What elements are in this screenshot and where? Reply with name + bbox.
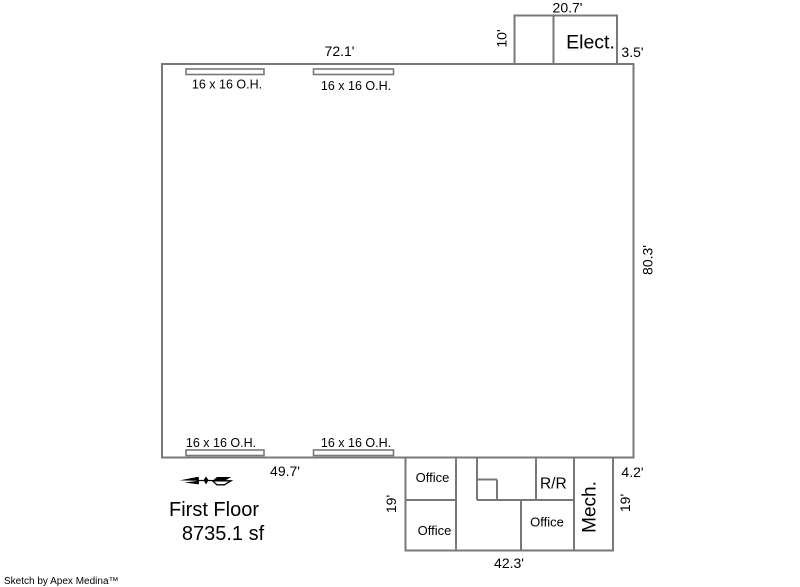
svg-text:4.2': 4.2' [621, 464, 643, 480]
svg-text:First Floor: First Floor [169, 499, 259, 521]
svg-text:3.5': 3.5' [621, 44, 643, 60]
svg-text:8735.1 sf: 8735.1 sf [182, 523, 265, 545]
svg-text:Office: Office [530, 515, 564, 530]
svg-text:20.7': 20.7' [553, 0, 583, 16]
svg-text:Sketch by Apex Medina™: Sketch by Apex Medina™ [4, 576, 119, 587]
svg-text:16 x 16 O.H.: 16 x 16 O.H. [192, 78, 262, 92]
svg-text:Office: Office [416, 470, 450, 485]
svg-text:80.3': 80.3' [640, 245, 656, 275]
svg-text:R/R: R/R [540, 476, 567, 493]
svg-text:Elect.: Elect. [566, 31, 615, 53]
svg-text:19': 19' [617, 494, 633, 512]
svg-text:16 x 16 O.H.: 16 x 16 O.H. [321, 79, 391, 93]
svg-text:49.7': 49.7' [270, 463, 300, 479]
svg-text:72.1': 72.1' [325, 43, 355, 59]
svg-text:19': 19' [383, 495, 399, 513]
svg-text:16 x 16 O.H.: 16 x 16 O.H. [321, 436, 391, 450]
svg-text:42.3': 42.3' [494, 555, 524, 571]
svg-text:Mech.: Mech. [580, 481, 601, 533]
svg-text:16 x 16 O.H.: 16 x 16 O.H. [186, 436, 256, 450]
svg-text:10': 10' [494, 29, 510, 47]
svg-text:Office: Office [418, 523, 452, 538]
